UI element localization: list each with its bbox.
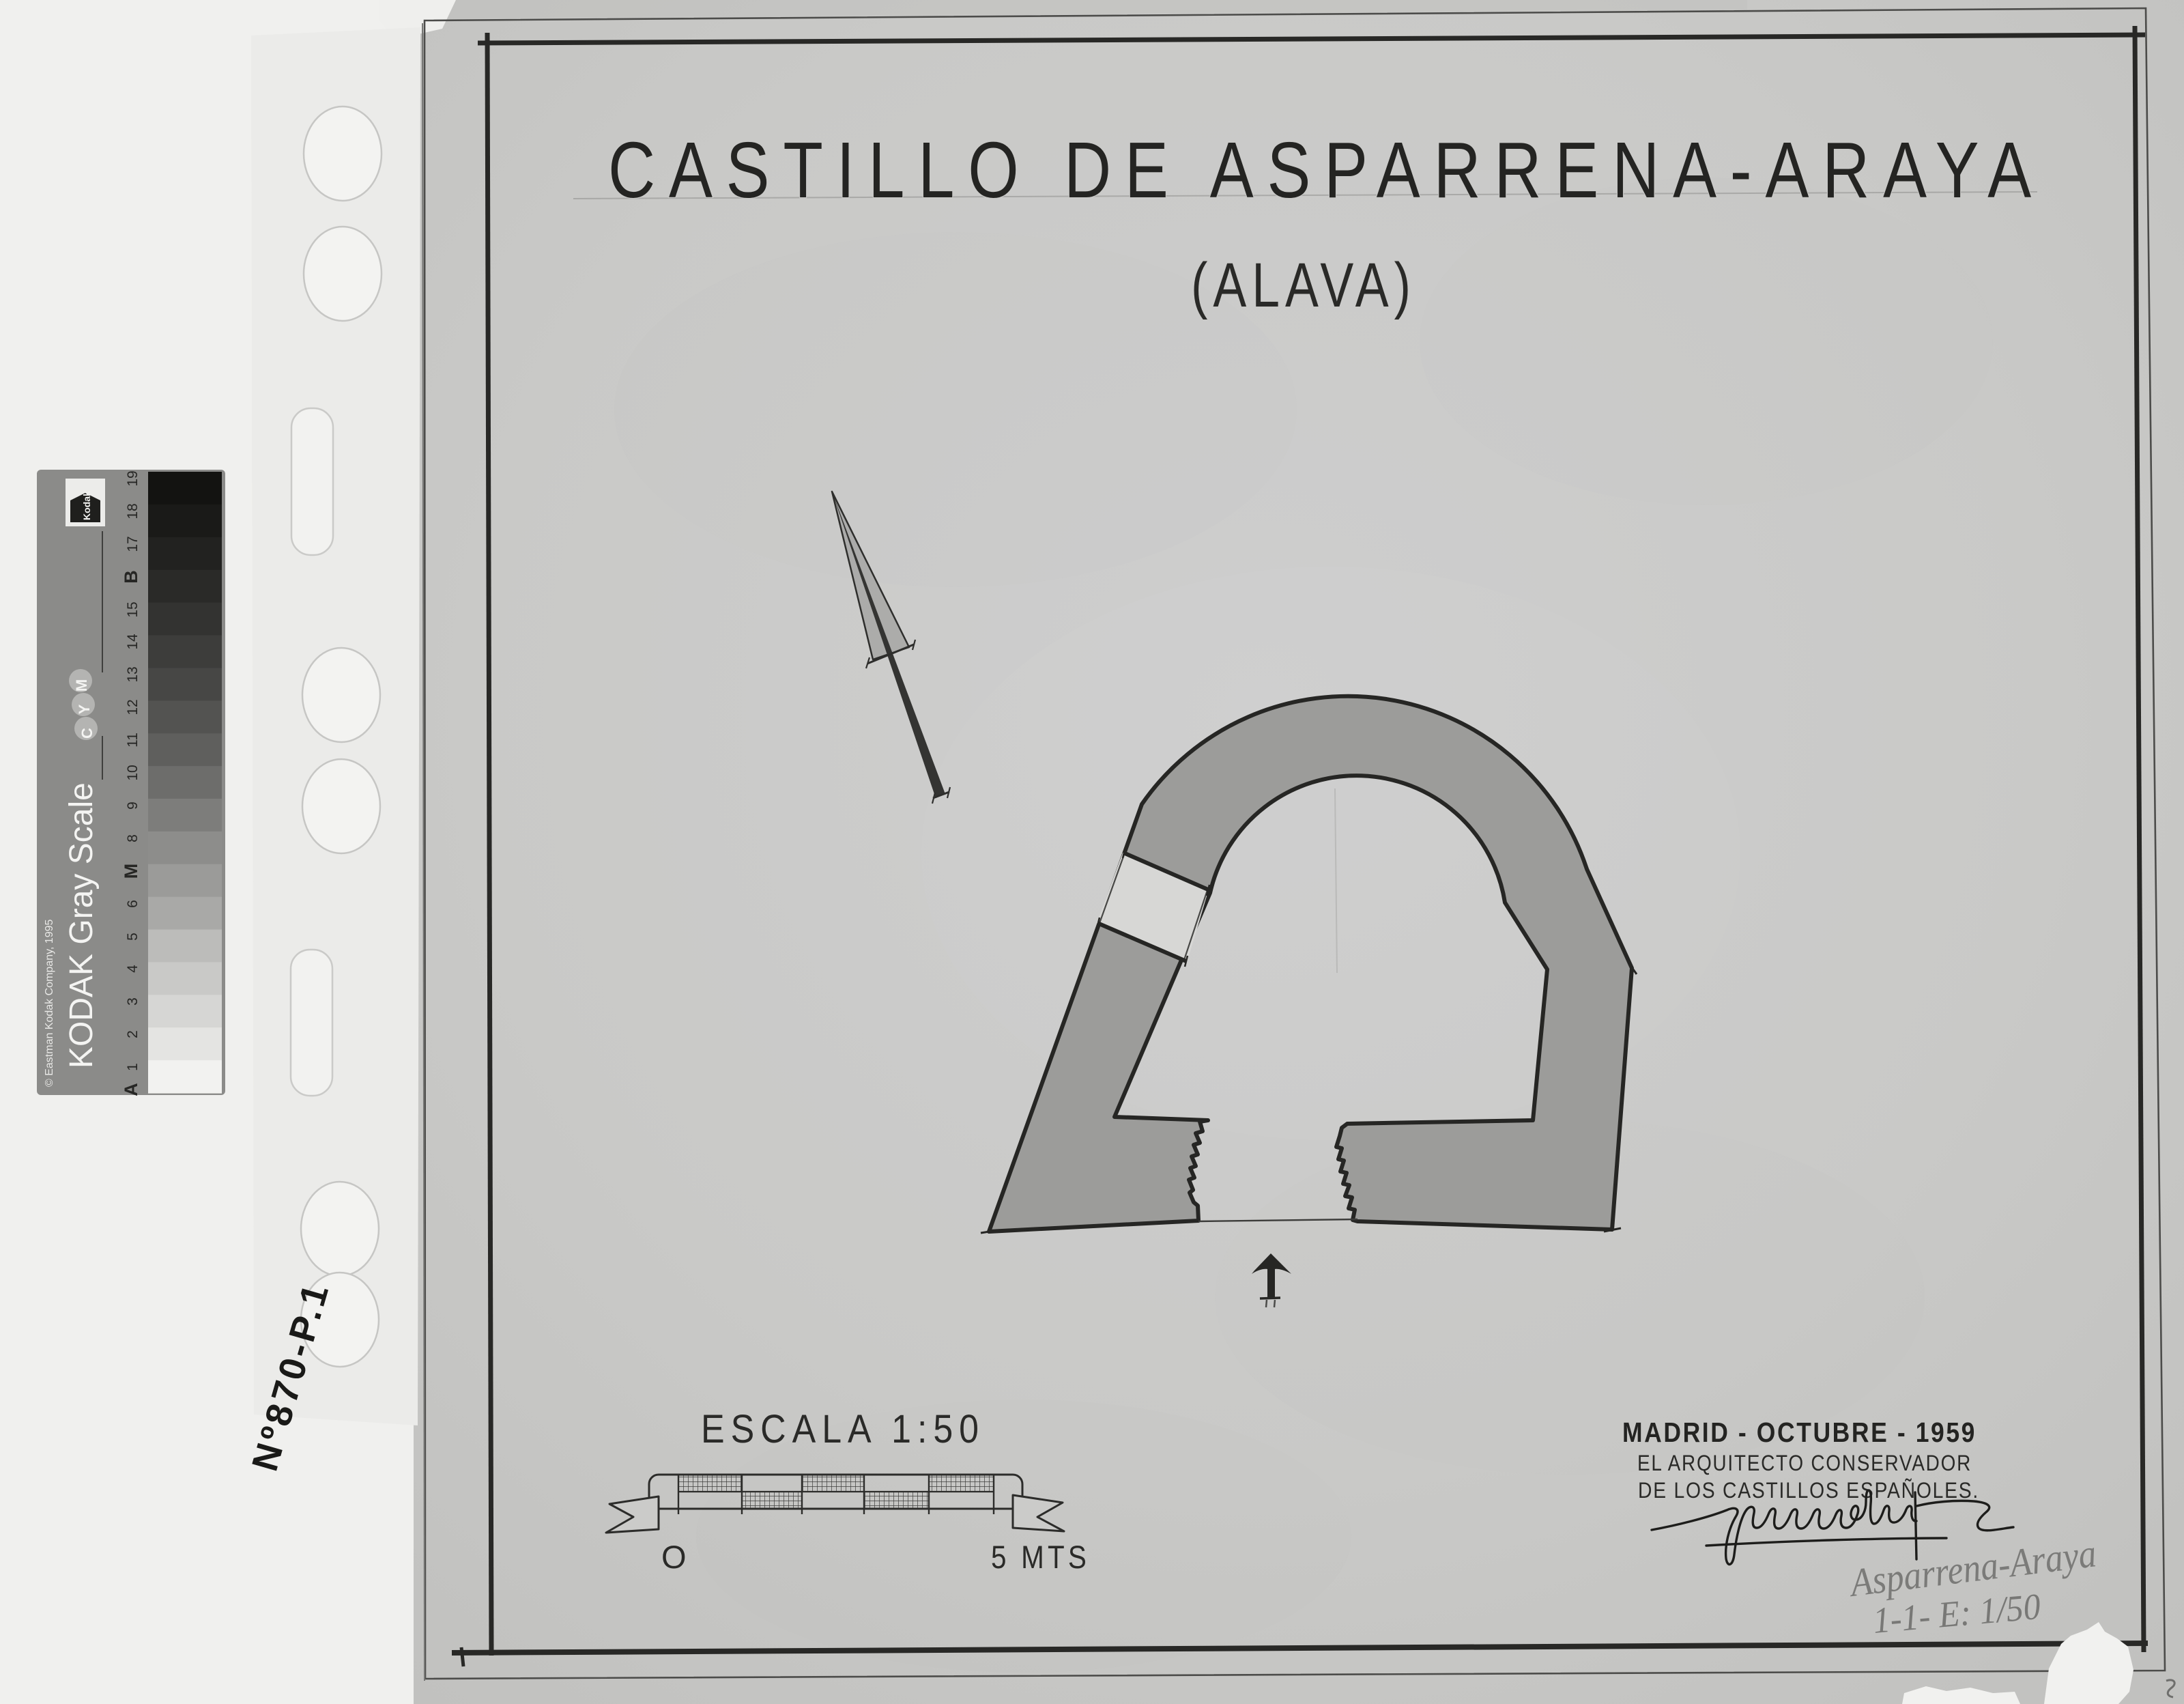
svg-text:1: 1 [125, 1063, 141, 1071]
svg-text:2: 2 [125, 1030, 141, 1038]
svg-text:10: 10 [125, 765, 141, 780]
svg-text:DE LOS CASTILLOS ESPAÑOLES.: DE LOS CASTILLOS ESPAÑOLES. [1638, 1478, 1979, 1503]
svg-text:ESCALA 1:50: ESCALA 1:50 [701, 1407, 985, 1451]
svg-text:3: 3 [125, 997, 141, 1006]
svg-text:5 MTS: 5 MTS [991, 1539, 1090, 1575]
svg-text:18: 18 [125, 503, 141, 519]
svg-text:17: 17 [125, 536, 141, 552]
svg-text:O: O [661, 1539, 687, 1575]
svg-text:19: 19 [125, 470, 141, 486]
svg-text:14: 14 [125, 634, 141, 650]
svg-text:5: 5 [125, 933, 141, 941]
svg-text:M: M [121, 864, 141, 879]
svg-text:KODAK Gray Scale: KODAK Gray Scale [63, 782, 100, 1068]
svg-text:6: 6 [125, 900, 141, 908]
svg-text:13: 13 [125, 666, 141, 682]
svg-text:B: B [121, 570, 141, 584]
svg-text:(ALAVA): (ALAVA) [1191, 251, 1416, 320]
svg-text:15: 15 [125, 601, 141, 617]
svg-text:A: A [121, 1083, 141, 1096]
svg-text:9: 9 [125, 801, 141, 810]
svg-text:CASTILLO DE ASPARRENA-ARAYA: CASTILLO DE ASPARRENA-ARAYA [608, 126, 2045, 214]
svg-text:M: M [73, 679, 90, 692]
svg-text:© Eastman Kodak Company, 1995: © Eastman Kodak Company, 1995 [44, 919, 55, 1087]
svg-text:12: 12 [125, 699, 141, 715]
svg-text:EL ARQUITECTO CONSERVADOR: EL ARQUITECTO CONSERVADOR [1637, 1451, 1972, 1475]
svg-text:8: 8 [125, 834, 141, 842]
svg-text:11: 11 [125, 733, 141, 748]
svg-text:4: 4 [125, 965, 141, 973]
svg-text:MADRID - OCTUBRE - 1959: MADRID - OCTUBRE - 1959 [1622, 1417, 1977, 1448]
svg-text:Y: Y [76, 704, 93, 714]
svg-text:C: C [78, 728, 96, 739]
svg-text:Kodak: Kodak [81, 491, 92, 520]
